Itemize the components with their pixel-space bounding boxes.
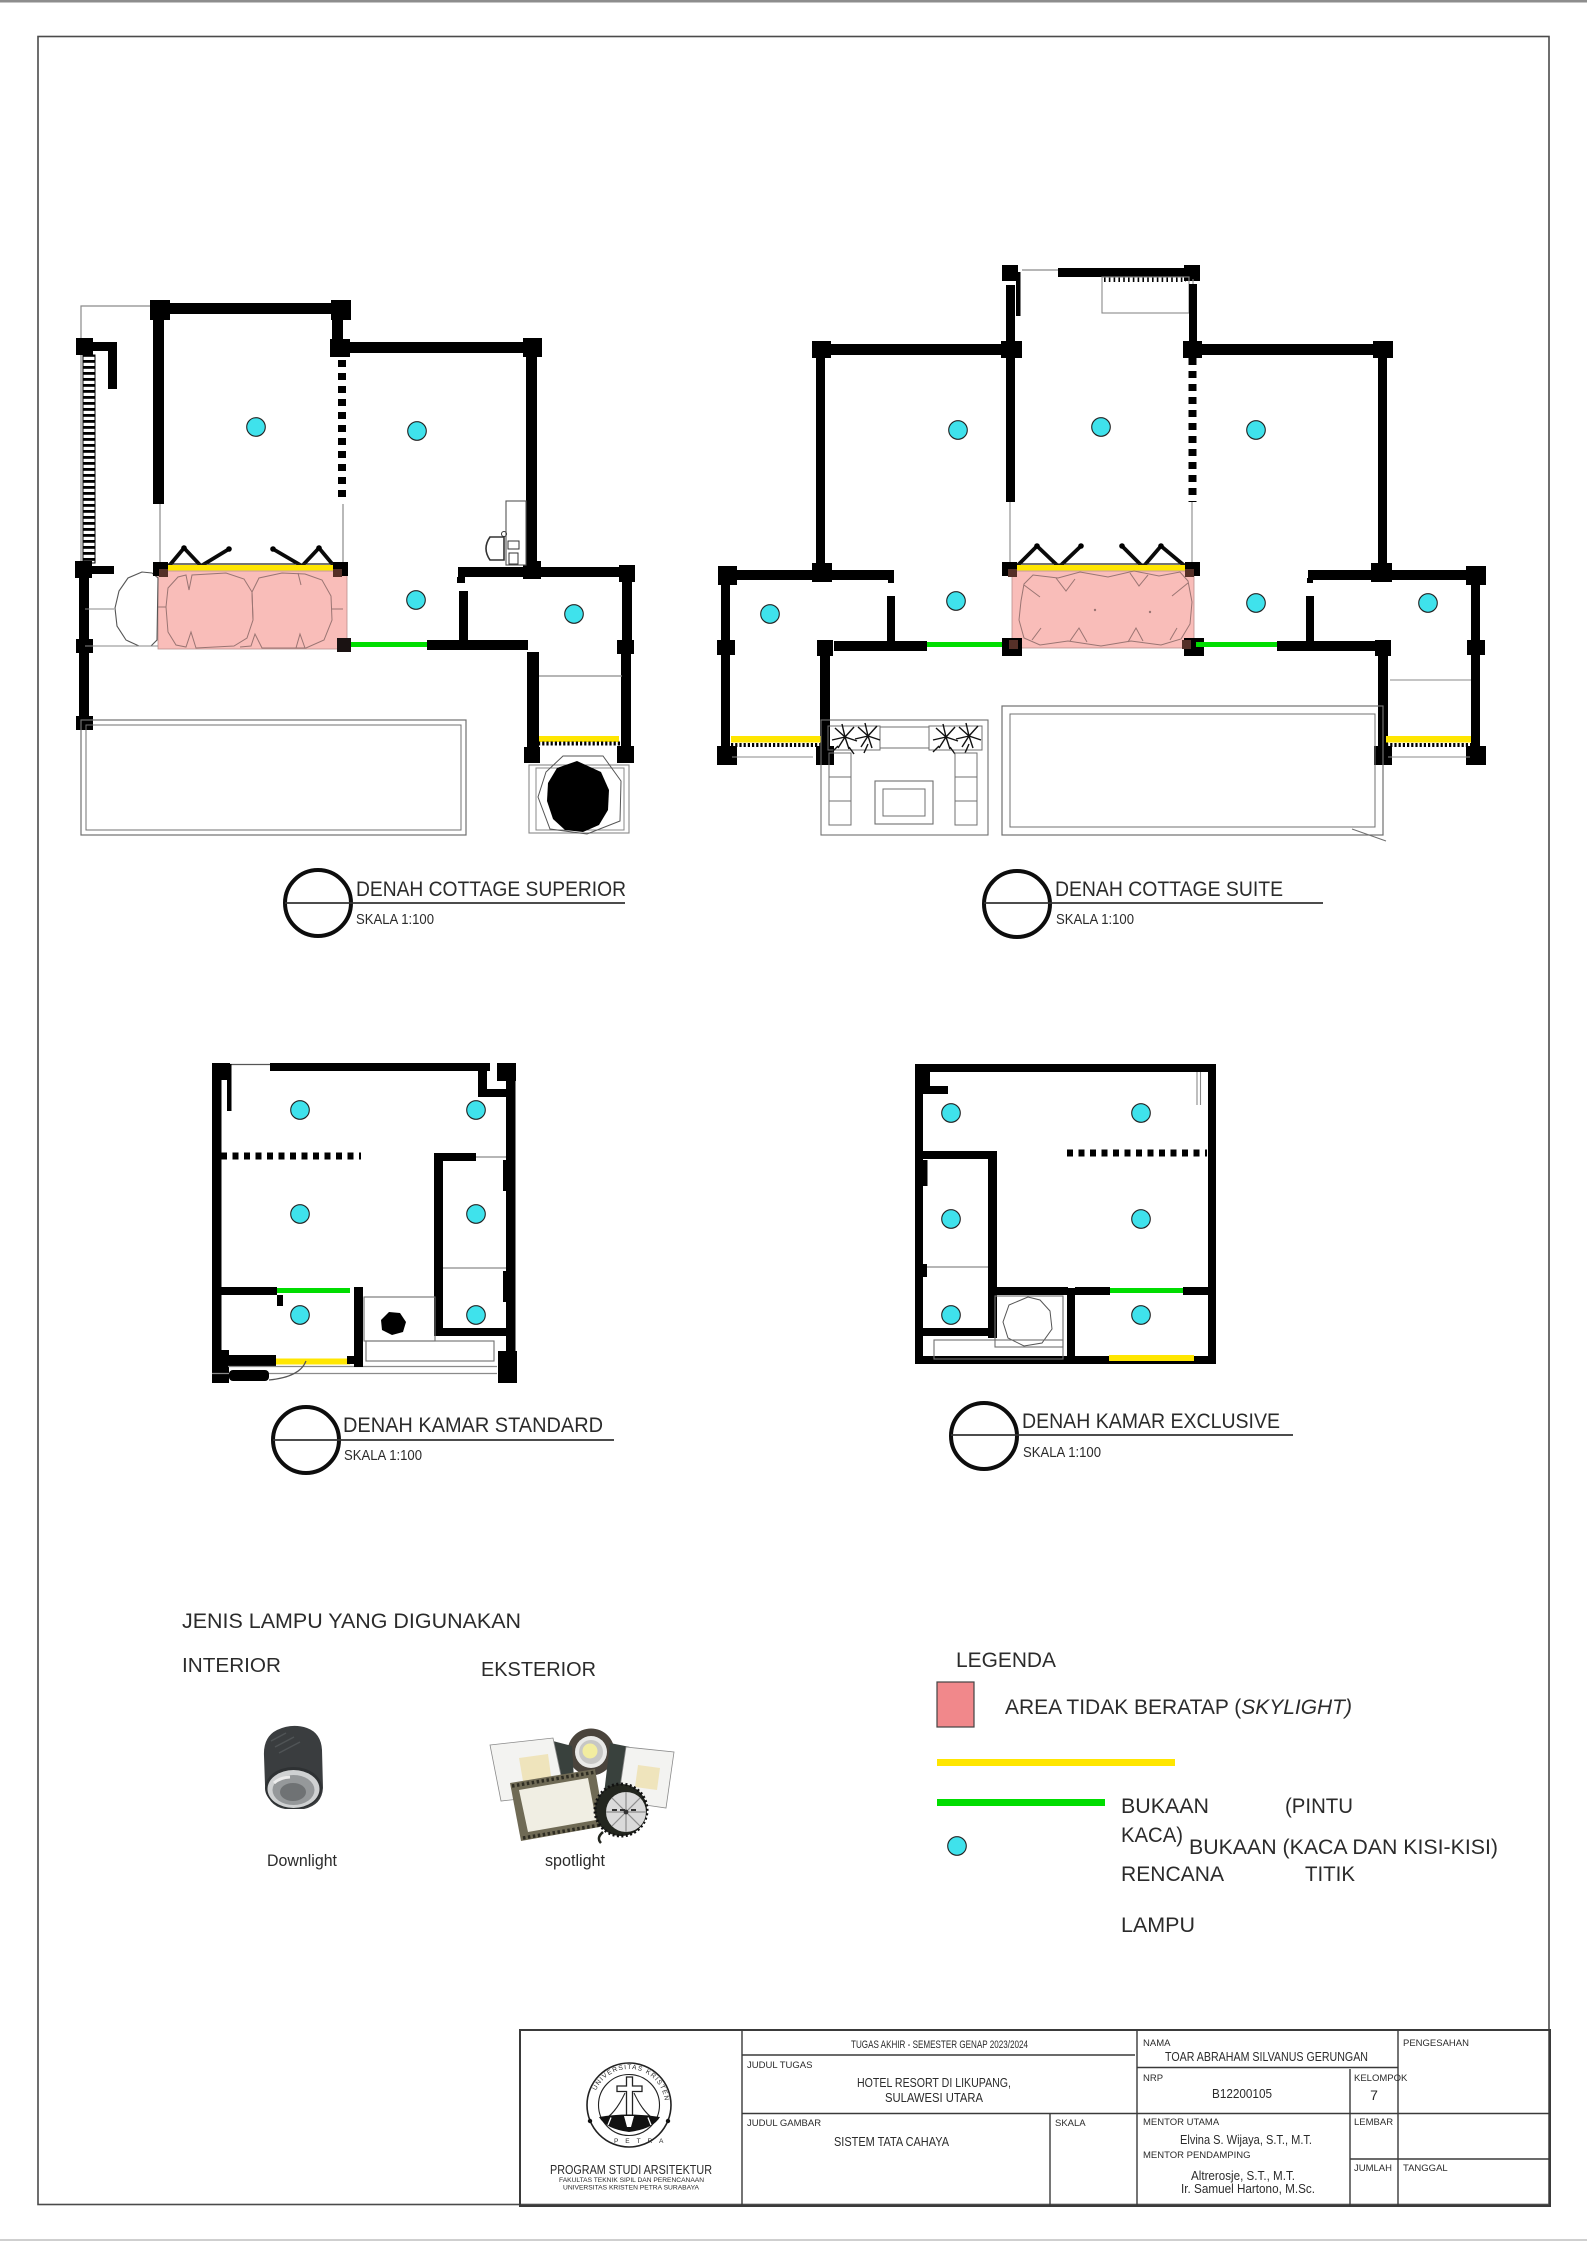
svg-text:INTERIOR: INTERIOR bbox=[182, 1654, 281, 1677]
svg-text:AREA TIDAK BERATAP (SKYLIGHT): AREA TIDAK BERATAP (SKYLIGHT) bbox=[1005, 1696, 1352, 1719]
svg-text:PROGRAM STUDI ARSITEKTUR: PROGRAM STUDI ARSITEKTUR bbox=[550, 2162, 712, 2177]
svg-text:B12200105: B12200105 bbox=[1212, 2086, 1272, 2101]
svg-text:SKALA 1:100: SKALA 1:100 bbox=[1023, 1445, 1101, 1461]
svg-text:EKSTERIOR: EKSTERIOR bbox=[481, 1658, 596, 1681]
svg-text:KELOMPOK: KELOMPOK bbox=[1354, 2073, 1408, 2084]
svg-text:LEMBAR: LEMBAR bbox=[1354, 2117, 1393, 2128]
svg-text:SKALA 1:100: SKALA 1:100 bbox=[344, 1448, 422, 1464]
svg-text:BUKAAN (KACA DAN KISI-KISI): BUKAAN (KACA DAN KISI-KISI) bbox=[1189, 1836, 1498, 1859]
svg-text:JENIS LAMPU YANG DIGUNAKAN: JENIS LAMPU YANG DIGUNAKAN bbox=[182, 1609, 521, 1633]
svg-text:TOAR ABRAHAM SILVANUS GERUNGAN: TOAR ABRAHAM SILVANUS GERUNGAN bbox=[1165, 2050, 1368, 2064]
svg-text:JUDUL GAMBAR: JUDUL GAMBAR bbox=[747, 2118, 821, 2129]
svg-text:JUMLAH: JUMLAH bbox=[1354, 2163, 1392, 2174]
svg-text:FAKULTAS TEKNIK SIPIL DAN PERE: FAKULTAS TEKNIK SIPIL DAN PERENCANAAN bbox=[559, 2177, 704, 2184]
svg-text:spotlight: spotlight bbox=[545, 1852, 605, 1870]
svg-text:DENAH COTTAGE SUITE: DENAH COTTAGE SUITE bbox=[1055, 878, 1283, 901]
svg-text:SKALA: SKALA bbox=[1055, 2118, 1086, 2129]
svg-text:BUKAAN: BUKAAN bbox=[1121, 1795, 1209, 1818]
svg-text:PENGESAHAN: PENGESAHAN bbox=[1403, 2038, 1469, 2049]
svg-text:SULAWESI UTARA: SULAWESI UTARA bbox=[885, 2090, 983, 2105]
svg-text:RENCANA: RENCANA bbox=[1121, 1863, 1224, 1886]
svg-text:Ir. Samuel Hartono, M.Sc.: Ir. Samuel Hartono, M.Sc. bbox=[1181, 2181, 1315, 2196]
svg-text:SISTEM TATA CAHAYA: SISTEM TATA CAHAYA bbox=[834, 2134, 949, 2149]
svg-text:MENTOR PENDAMPING: MENTOR PENDAMPING bbox=[1143, 2150, 1251, 2161]
svg-text:MENTOR UTAMA: MENTOR UTAMA bbox=[1143, 2117, 1220, 2128]
svg-text:NRP: NRP bbox=[1143, 2073, 1163, 2084]
svg-text:P E T R A: P E T R A bbox=[614, 2138, 666, 2145]
svg-text:Downlight: Downlight bbox=[267, 1852, 337, 1870]
svg-text:NAMA: NAMA bbox=[1143, 2038, 1171, 2049]
svg-text:UNIVERSITAS KRISTEN PETRA SURA: UNIVERSITAS KRISTEN PETRA SURABAYA bbox=[563, 2185, 699, 2192]
svg-text:SKALA 1:100: SKALA 1:100 bbox=[1056, 912, 1134, 928]
svg-text:TUGAS AKHIR - SEMESTER GENAP 2: TUGAS AKHIR - SEMESTER GENAP 2023/2024 bbox=[851, 2039, 1028, 2051]
svg-text:SKALA 1:100: SKALA 1:100 bbox=[356, 912, 434, 928]
svg-text:LAMPU: LAMPU bbox=[1121, 1914, 1195, 1937]
svg-text:Elvina S. Wijaya, S.T., M.T.: Elvina S. Wijaya, S.T., M.T. bbox=[1180, 2132, 1312, 2147]
svg-text:DENAH KAMAR EXCLUSIVE: DENAH KAMAR EXCLUSIVE bbox=[1022, 1410, 1280, 1433]
svg-text:JUDUL TUGAS: JUDUL TUGAS bbox=[747, 2060, 812, 2071]
svg-text:TITIK: TITIK bbox=[1305, 1863, 1355, 1886]
svg-text:LEGENDA: LEGENDA bbox=[956, 1648, 1057, 1672]
svg-text:KACA): KACA) bbox=[1121, 1824, 1183, 1847]
svg-text:DENAH KAMAR STANDARD: DENAH KAMAR STANDARD bbox=[343, 1414, 603, 1437]
svg-text:HOTEL RESORT DI LIKUPANG,: HOTEL RESORT DI LIKUPANG, bbox=[857, 2075, 1011, 2090]
svg-text:7: 7 bbox=[1370, 2087, 1378, 2103]
svg-text:(PINTU: (PINTU bbox=[1285, 1795, 1353, 1818]
svg-text:DENAH COTTAGE SUPERIOR: DENAH COTTAGE SUPERIOR bbox=[356, 878, 626, 901]
svg-text:TANGGAL: TANGGAL bbox=[1403, 2163, 1448, 2174]
